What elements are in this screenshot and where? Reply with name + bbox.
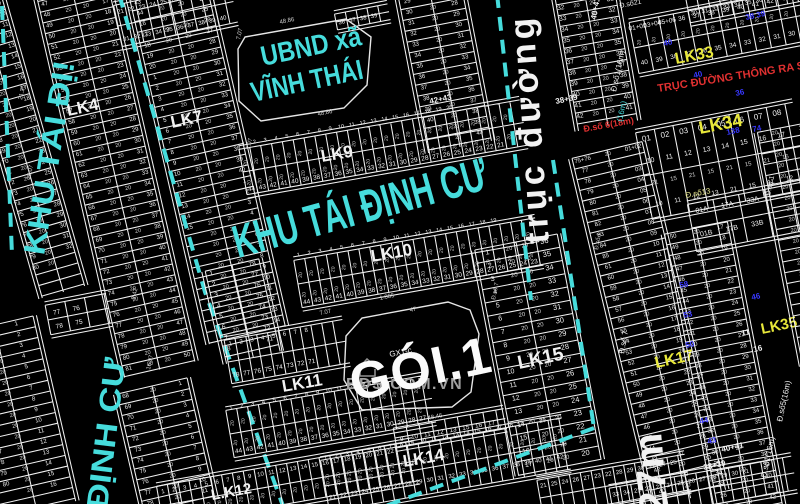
svg-text:15: 15 xyxy=(447,225,454,232)
svg-text:12: 12 xyxy=(414,231,421,238)
svg-text:20: 20 xyxy=(355,282,361,288)
svg-text:20: 20 xyxy=(406,409,412,415)
svg-text:11: 11 xyxy=(665,153,674,161)
svg-text:20: 20 xyxy=(301,292,307,298)
svg-text:12: 12 xyxy=(359,120,366,127)
svg-text:20: 20 xyxy=(388,276,394,282)
svg-text:18: 18 xyxy=(479,220,486,227)
svg-text:14: 14 xyxy=(381,116,388,123)
svg-text:20: 20 xyxy=(498,443,504,449)
svg-text:15: 15 xyxy=(740,139,749,147)
svg-text:20: 20 xyxy=(702,272,709,279)
svg-text:20: 20 xyxy=(260,492,266,498)
svg-text:20: 20 xyxy=(366,280,372,286)
svg-text:20: 20 xyxy=(352,419,358,425)
svg-text:20: 20 xyxy=(579,35,586,42)
svg-text:20: 20 xyxy=(695,28,701,34)
svg-text:34: 34 xyxy=(545,262,555,272)
svg-text:20: 20 xyxy=(593,21,600,28)
svg-text:20: 20 xyxy=(399,274,405,280)
svg-text:20: 20 xyxy=(771,130,778,137)
svg-text:20: 20 xyxy=(229,420,235,426)
svg-text:20: 20 xyxy=(303,485,309,491)
svg-text:20: 20 xyxy=(492,116,498,122)
svg-text:20: 20 xyxy=(712,326,719,333)
svg-text:20: 20 xyxy=(395,411,401,417)
svg-text:11: 11 xyxy=(404,233,411,240)
svg-text:20: 20 xyxy=(731,423,738,430)
svg-text:20: 20 xyxy=(345,284,351,290)
svg-text:25: 25 xyxy=(568,381,578,391)
svg-text:20: 20 xyxy=(308,148,314,154)
svg-text:20: 20 xyxy=(729,412,736,419)
svg-text:11: 11 xyxy=(509,381,518,389)
svg-text:20: 20 xyxy=(385,413,391,419)
svg-text:20: 20 xyxy=(438,125,444,131)
svg-text:20: 20 xyxy=(330,422,336,428)
svg-text:19: 19 xyxy=(490,218,497,225)
svg-text:20: 20 xyxy=(374,415,380,421)
svg-text:20: 20 xyxy=(316,405,322,411)
svg-text:21: 21 xyxy=(578,434,588,444)
svg-text:20: 20 xyxy=(780,173,787,180)
svg-text:20: 20 xyxy=(362,139,368,145)
svg-text:20: 20 xyxy=(788,216,795,223)
svg-text:20: 20 xyxy=(773,141,780,148)
svg-text:20: 20 xyxy=(275,154,281,160)
svg-text:20: 20 xyxy=(273,412,279,418)
svg-text:20: 20 xyxy=(575,13,582,20)
svg-text:20: 20 xyxy=(336,472,342,478)
svg-text:20: 20 xyxy=(284,410,290,416)
svg-text:20: 20 xyxy=(784,195,791,202)
svg-text:20: 20 xyxy=(244,438,250,444)
svg-text:20: 20 xyxy=(608,108,615,115)
svg-text:20: 20 xyxy=(651,37,657,43)
svg-text:20: 20 xyxy=(786,206,793,213)
svg-text:20: 20 xyxy=(739,19,745,25)
svg-text:20: 20 xyxy=(436,37,443,44)
svg-text:20: 20 xyxy=(636,39,642,45)
svg-text:20: 20 xyxy=(592,111,599,118)
svg-text:26: 26 xyxy=(565,368,575,378)
svg-text:20: 20 xyxy=(442,69,449,76)
svg-text:31: 31 xyxy=(552,302,562,312)
svg-text:20: 20 xyxy=(384,135,390,141)
svg-text:20: 20 xyxy=(588,89,595,96)
svg-text:20: 20 xyxy=(377,278,383,284)
svg-text:20: 20 xyxy=(790,227,797,234)
svg-text:20: 20 xyxy=(590,100,597,107)
svg-text:20: 20 xyxy=(471,241,477,247)
svg-text:20: 20 xyxy=(455,451,461,457)
svg-text:15: 15 xyxy=(392,114,399,121)
svg-text:17: 17 xyxy=(468,221,475,228)
svg-text:20: 20 xyxy=(493,237,499,243)
svg-text:20: 20 xyxy=(368,466,374,472)
svg-text:20: 20 xyxy=(681,31,687,37)
svg-text:20: 20 xyxy=(432,15,439,22)
svg-text:19: 19 xyxy=(435,107,442,114)
svg-text:20: 20 xyxy=(294,408,300,414)
svg-text:20: 20 xyxy=(710,25,716,31)
svg-text:20: 20 xyxy=(314,483,320,489)
svg-text:20: 20 xyxy=(309,426,315,432)
svg-text:20: 20 xyxy=(346,470,352,476)
svg-text:20: 20 xyxy=(427,127,433,133)
svg-text:24: 24 xyxy=(570,395,580,405)
svg-text:14: 14 xyxy=(721,142,730,150)
svg-text:20: 20 xyxy=(776,152,783,159)
svg-text:20: 20 xyxy=(581,46,588,53)
svg-text:20: 20 xyxy=(325,474,331,480)
svg-text:20: 20 xyxy=(573,2,580,9)
svg-text:20: 20 xyxy=(417,251,423,257)
svg-text:20: 20 xyxy=(459,122,465,128)
svg-text:20: 20 xyxy=(255,436,261,442)
svg-text:20: 20 xyxy=(363,417,369,423)
svg-text:16: 16 xyxy=(403,112,410,119)
svg-text:20: 20 xyxy=(782,184,789,191)
svg-text:20: 20 xyxy=(319,268,325,274)
svg-text:20: 20 xyxy=(420,271,426,277)
svg-text:20: 20 xyxy=(334,286,340,292)
svg-text:20: 20 xyxy=(254,158,260,164)
svg-text:32: 32 xyxy=(550,289,560,299)
svg-text:20: 20 xyxy=(697,250,704,257)
svg-text:20: 20 xyxy=(379,464,385,470)
svg-text:13: 13 xyxy=(702,146,711,154)
svg-text:20: 20 xyxy=(320,424,326,430)
svg-text:20: 20 xyxy=(725,22,731,28)
svg-text:20: 20 xyxy=(587,78,594,85)
svg-text:12: 12 xyxy=(511,394,520,402)
svg-text:20: 20 xyxy=(240,418,246,424)
svg-text:35: 35 xyxy=(542,249,552,259)
svg-text:14: 14 xyxy=(517,421,526,429)
svg-text:20: 20 xyxy=(444,80,451,87)
svg-text:20: 20 xyxy=(695,240,702,247)
svg-text:30: 30 xyxy=(555,315,565,325)
svg-text:20: 20 xyxy=(606,97,613,104)
svg-text:20: 20 xyxy=(309,270,315,276)
svg-text:20: 20 xyxy=(700,261,707,268)
svg-text:20: 20 xyxy=(464,263,470,269)
svg-text:20: 20 xyxy=(439,247,445,253)
svg-text:20: 20 xyxy=(482,239,488,245)
svg-text:20: 20 xyxy=(442,267,448,273)
svg-text:20: 20 xyxy=(448,102,455,109)
svg-text:20: 20 xyxy=(330,266,336,272)
svg-text:20: 20 xyxy=(363,260,369,266)
svg-text:20: 20 xyxy=(453,123,460,130)
svg-text:10: 10 xyxy=(393,235,400,242)
svg-text:20: 20 xyxy=(708,304,715,311)
svg-text:20: 20 xyxy=(744,488,751,495)
svg-text:20: 20 xyxy=(466,449,472,455)
svg-text:29: 29 xyxy=(557,328,567,338)
svg-text:20: 20 xyxy=(405,131,411,137)
svg-text:20: 20 xyxy=(449,245,455,251)
svg-text:20: 20 xyxy=(276,432,282,438)
svg-text:20: 20 xyxy=(373,137,379,143)
svg-text:13: 13 xyxy=(514,408,523,416)
svg-text:20: 20 xyxy=(233,440,239,446)
svg-text:20: 20 xyxy=(581,448,591,458)
svg-text:20: 20 xyxy=(602,75,609,82)
svg-text:20: 20 xyxy=(305,406,311,412)
svg-text:20: 20 xyxy=(341,264,347,270)
svg-text:23: 23 xyxy=(573,408,583,418)
svg-text:20: 20 xyxy=(341,420,347,426)
svg-text:20: 20 xyxy=(460,243,466,249)
svg-text:20: 20 xyxy=(727,402,734,409)
svg-text:20: 20 xyxy=(716,348,723,355)
svg-text:13: 13 xyxy=(370,118,377,125)
svg-text:20: 20 xyxy=(410,272,416,278)
svg-text:20: 20 xyxy=(504,236,510,242)
svg-text:20: 20 xyxy=(714,337,721,344)
svg-text:20: 20 xyxy=(243,160,249,166)
svg-text:20: 20 xyxy=(733,434,740,441)
svg-text:20: 20 xyxy=(721,369,728,376)
svg-text:20: 20 xyxy=(428,249,434,255)
svg-text:20: 20 xyxy=(718,358,725,365)
svg-text:12: 12 xyxy=(684,149,693,157)
svg-text:20: 20 xyxy=(450,112,457,119)
svg-text:20: 20 xyxy=(298,272,304,278)
svg-text:20: 20 xyxy=(723,380,730,387)
svg-text:20: 20 xyxy=(704,283,711,290)
svg-text:20: 20 xyxy=(455,134,462,141)
svg-text:20: 20 xyxy=(487,445,493,451)
svg-text:20: 20 xyxy=(298,428,304,434)
svg-text:20: 20 xyxy=(282,489,288,495)
svg-text:20: 20 xyxy=(262,414,268,420)
svg-text:20: 20 xyxy=(431,269,437,275)
svg-text:20: 20 xyxy=(434,26,441,33)
svg-text:20: 20 xyxy=(476,447,482,453)
svg-text:10: 10 xyxy=(338,124,345,131)
svg-text:14: 14 xyxy=(436,227,443,234)
svg-text:10: 10 xyxy=(506,368,515,376)
svg-text:17: 17 xyxy=(524,461,533,469)
svg-text:20: 20 xyxy=(293,487,299,493)
svg-text:20: 20 xyxy=(595,32,602,39)
svg-text:20: 20 xyxy=(265,434,271,440)
svg-text:20: 20 xyxy=(312,290,318,296)
svg-text:20: 20 xyxy=(271,490,277,496)
svg-text:20: 20 xyxy=(357,468,363,474)
svg-text:20: 20 xyxy=(769,14,775,20)
svg-text:20: 20 xyxy=(706,294,713,301)
svg-text:20: 20 xyxy=(394,133,400,139)
svg-text:20: 20 xyxy=(297,150,303,156)
svg-text:20: 20 xyxy=(286,152,292,158)
svg-text:13: 13 xyxy=(425,229,432,236)
svg-text:20: 20 xyxy=(778,162,785,169)
svg-text:15: 15 xyxy=(519,434,528,442)
svg-text:20: 20 xyxy=(444,453,450,459)
svg-text:20: 20 xyxy=(440,58,447,65)
svg-text:20: 20 xyxy=(264,156,270,162)
svg-text:20: 20 xyxy=(429,4,436,11)
svg-text:20: 20 xyxy=(784,11,790,17)
svg-text:20: 20 xyxy=(352,262,358,268)
svg-text:20: 20 xyxy=(792,238,799,245)
svg-text:20: 20 xyxy=(323,288,329,294)
svg-text:11: 11 xyxy=(349,122,356,129)
svg-text:20: 20 xyxy=(585,67,592,74)
svg-text:20: 20 xyxy=(351,141,357,147)
svg-text:20: 20 xyxy=(794,249,800,256)
svg-text:16: 16 xyxy=(458,223,465,230)
svg-text:20: 20 xyxy=(438,48,445,55)
svg-text:20: 20 xyxy=(577,24,584,31)
svg-text:20: 20 xyxy=(600,65,607,72)
svg-text:10: 10 xyxy=(646,157,655,165)
svg-text:33: 33 xyxy=(547,275,557,285)
svg-text:20: 20 xyxy=(693,229,700,236)
svg-text:20: 20 xyxy=(481,118,487,124)
svg-text:20: 20 xyxy=(710,315,717,322)
svg-text:20: 20 xyxy=(725,391,732,398)
svg-text:20: 20 xyxy=(797,260,800,267)
svg-text:20: 20 xyxy=(597,43,604,50)
svg-text:20: 20 xyxy=(287,430,293,436)
svg-text:20: 20 xyxy=(531,438,537,444)
svg-text:20: 20 xyxy=(390,462,396,468)
svg-text:20: 20 xyxy=(327,403,333,409)
svg-text:20: 20 xyxy=(599,54,606,61)
svg-text:20: 20 xyxy=(583,57,590,64)
svg-text:20: 20 xyxy=(251,416,257,422)
svg-text:20: 20 xyxy=(453,265,459,271)
svg-text:20: 20 xyxy=(338,401,344,407)
